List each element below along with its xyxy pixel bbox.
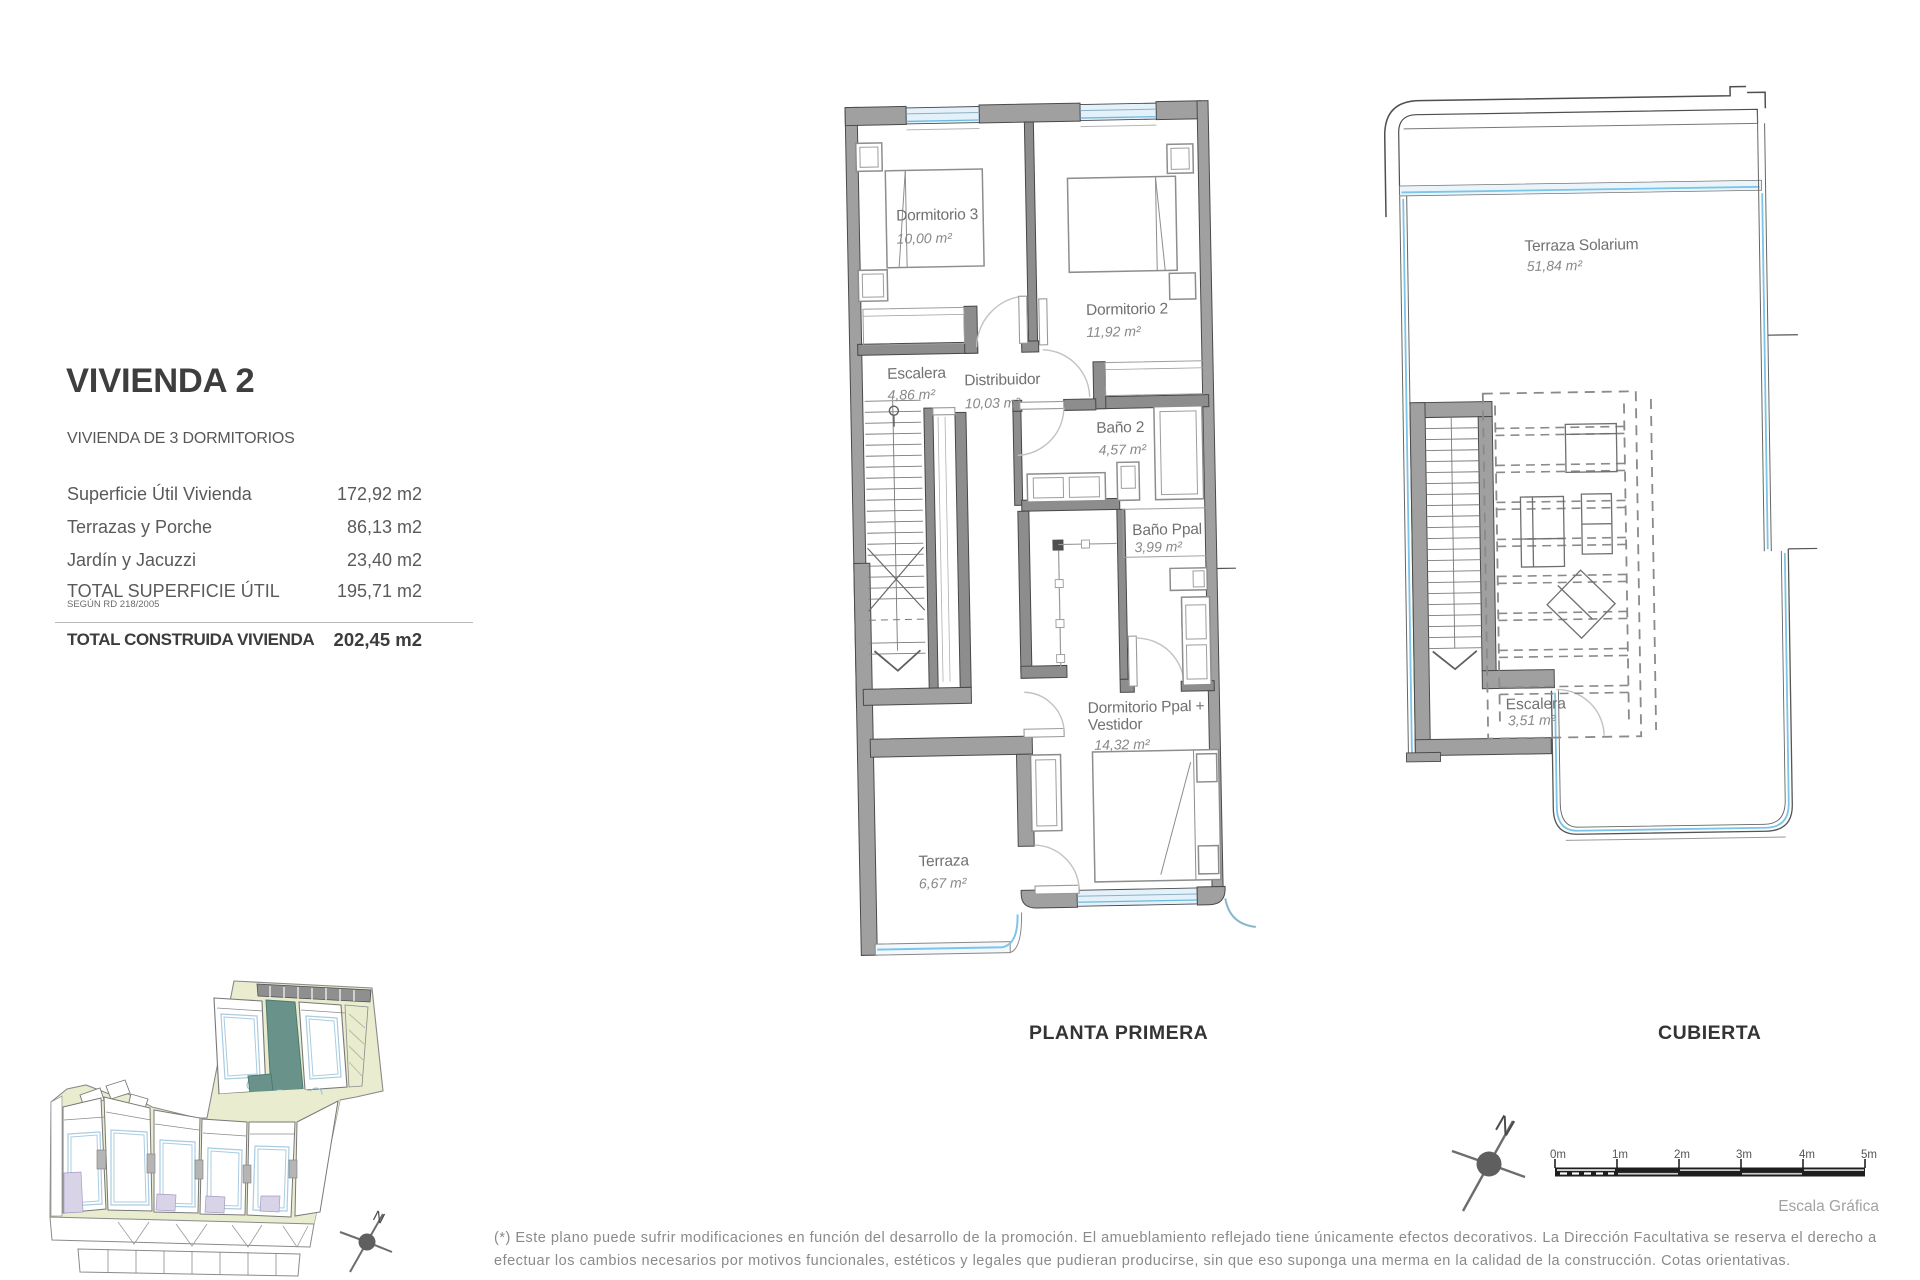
- svg-text:2m: 2m: [1674, 1149, 1690, 1161]
- svg-text:3,99 m²: 3,99 m²: [1134, 538, 1183, 555]
- svg-text:10,00 m²: 10,00 m²: [896, 230, 953, 247]
- svg-text:1m: 1m: [1612, 1149, 1628, 1161]
- svg-text:5m: 5m: [1861, 1149, 1877, 1161]
- svg-text:Terraza Solarium: Terraza Solarium: [1524, 236, 1638, 255]
- svg-text:Dormitorio 3: Dormitorio 3: [896, 206, 978, 225]
- svg-text:10,03 m²: 10,03 m²: [965, 394, 1022, 411]
- svg-text:0m: 0m: [1550, 1149, 1566, 1161]
- svg-text:Escalera: Escalera: [1506, 695, 1567, 713]
- svg-text:Vestidor: Vestidor: [1088, 716, 1143, 734]
- svg-text:Dormitorio 2: Dormitorio 2: [1086, 300, 1168, 319]
- svg-text:4,86 m²: 4,86 m²: [887, 386, 936, 403]
- svg-text:Terraza: Terraza: [918, 852, 969, 870]
- svg-text:3,51 m²: 3,51 m²: [1508, 712, 1557, 729]
- svg-text:Baño 2: Baño 2: [1096, 419, 1144, 437]
- svg-text:Dormitorio Ppal +: Dormitorio Ppal +: [1087, 698, 1204, 717]
- svg-text:11,92 m²: 11,92 m²: [1086, 323, 1142, 340]
- svg-text:4m: 4m: [1799, 1149, 1815, 1161]
- svg-text:Escalera: Escalera: [887, 365, 947, 383]
- svg-text:N: N: [1490, 1110, 1519, 1142]
- svg-text:51,84 m²: 51,84 m²: [1527, 257, 1584, 274]
- svg-text:N: N: [370, 1207, 387, 1227]
- svg-text:6,67 m²: 6,67 m²: [919, 874, 968, 891]
- svg-text:3m: 3m: [1736, 1149, 1752, 1161]
- svg-text:Distribuidor: Distribuidor: [964, 371, 1040, 389]
- svg-text:Baño Ppal: Baño Ppal: [1132, 521, 1202, 539]
- svg-text:4,57 m²: 4,57 m²: [1099, 441, 1148, 458]
- svg-text:14,32 m²: 14,32 m²: [1094, 736, 1151, 753]
